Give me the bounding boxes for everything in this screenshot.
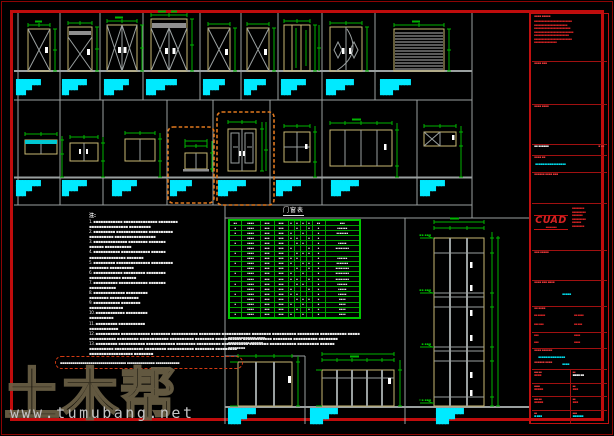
schedule-footnote: ▪▪▪▪▪▪▪▪ [228, 346, 265, 351]
red-note-lines: ▪▪▪▪▪▪▪▪▪▪▪▪▪▪▪▪▪▪▪▪▪▪▪▪▪▪▪▪▪▪▪▪▪▪▪▪▪▪▪▪… [534, 20, 573, 45]
staff-cell: ▪▪ ▪▪▪▪▪ [534, 314, 545, 318]
drawing-label-line: ██ [203, 91, 224, 96]
drawing-label: ████████ █████ ██ [62, 81, 86, 95]
drawing-label: ██████████ ██████ ███ [146, 81, 176, 95]
info-cell: ▪▪ ▪▪▪ [570, 383, 608, 397]
labels-row1: ████████ █████ ███ ████████ █████ ██ ███… [0, 81, 614, 99]
design-institute-logo: CUAD ▪▪▪▪▪▪▪▪ [534, 215, 568, 230]
drawing-label: ████████ █████ ██ [62, 182, 86, 196]
drawing-label: ████████ ██████ ███ [104, 81, 128, 95]
drawing-label-line: ███ [281, 91, 305, 96]
drawing-label: █████████ ██████ ███ [326, 81, 353, 95]
titleblock-seal-section: ▪▪▪▪ ▪▪▪▪ [532, 104, 607, 145]
drawing-label-line: ████ [436, 420, 463, 425]
info-cell: ▪▪▪▪ ▪▪▪▪▪ [532, 383, 570, 397]
drawing-label: ████████ █████ ███ [420, 182, 444, 196]
schedule-cell: ▪▪▪ [274, 312, 288, 318]
door-elevation-5 [208, 22, 237, 71]
info-value: ▪▪▪▪ ▪▪ [573, 374, 606, 378]
drawing-label: ████████ █████ ███ [16, 81, 40, 95]
drawing-label-line: ███ [420, 192, 444, 197]
drawing-label-line: ████ [380, 91, 410, 96]
sheet-name-text: ▪▪▪▪ [562, 362, 569, 366]
role-cell: ▪▪▪ [534, 334, 539, 338]
window-elevation-4-highlighted [183, 139, 214, 172]
drawing-label: ████████ █████ ███ [281, 81, 305, 95]
window-elevation-2 [70, 135, 105, 177]
cad-sheet: ▪▪.▪▪▪ ▪▪.▪▪▪ ▪.▪▪▪ ±▪.▪▪▪ 注: 1. ▪▪▪▪▪▪▪… [0, 0, 614, 436]
window-elevation-3 [125, 131, 162, 177]
watermark-url: www.tumubang.net [10, 404, 195, 422]
drawing-label-line: ██ [276, 192, 300, 197]
staff-cell: ▪▪▪ ▪▪▪ [534, 323, 544, 327]
drawing-label: ████████ ██████ ███ [112, 182, 136, 196]
title-block: ▪▪▪▪ ▪▪▪▪▪ ▪▪▪▪▪▪▪▪▪▪▪▪▪▪▪▪▪▪▪▪▪▪▪▪▪▪▪▪▪… [529, 13, 609, 424]
storefront-elevation-middle [316, 352, 402, 406]
drawing-label-line: ████ [228, 420, 255, 425]
titleblock-cert-section: ▪▪▪▪ ▪▪ ▪▪▪▪▪▪▪▪▪▪▪▪▪▪▪▪▪ [532, 155, 607, 173]
schedule-cell: ▪ [312, 312, 325, 318]
door-elevation-8 [330, 21, 369, 71]
drawing-label-line: ███ [16, 192, 40, 197]
info-value: ▪▪▪▪▪▪ [573, 415, 606, 419]
schedule-title: 门窗表 [283, 205, 304, 216]
role-cell: ▪▪▪ [534, 341, 539, 345]
drawing-label-line: ███ [16, 91, 40, 96]
titleblock-project-name-section: ▪▪▪▪ ▪▪▪▪▪▪ ▪▪▪▪▪▪▪▪▪▪▪▪▪▪▪ ▪▪▪▪▪▪ ▪▪▪▪ … [532, 348, 607, 370]
drawing-label-line: ██ [170, 192, 191, 197]
door-elevation-2 [68, 21, 99, 71]
project-name-text: ▪▪▪▪▪▪▪▪▪▪▪▪▪▪▪ [538, 355, 565, 359]
section-caption: ▪▪▪▪ ▪▪▪ ▪▪▪▪ [534, 281, 554, 284]
schedule-cell: ▪ [229, 312, 241, 318]
drawing-label-line: ██ [62, 91, 86, 96]
drawing-label-line: ███ [326, 91, 353, 96]
schedule-cell: ▪▪▪▪ [325, 312, 360, 318]
titleblock-subproject-section: ▪▪▪▪ ▪▪▪ ▪▪▪▪ ▪▪▪▪▪ [532, 280, 607, 307]
schedule-footnotes: ▪▪▪▪▪▪▪▪▪▪▪▪▪ ▪▪▪▪▪▪▪▪▪▪▪▪▪▪ ▪▪▪▪▪▪▪▪▪▪▪… [228, 336, 265, 351]
section-caption: ▪▪▪▪ ▪▪▪ [534, 62, 547, 65]
window-elevation-1 [25, 132, 64, 177]
level-marker-text: ±▪.▪▪▪ [419, 398, 431, 402]
drawing-label-line: ███ [104, 91, 128, 96]
info-cell: ▪▪ ▪▪▪▪ ▪▪ [570, 369, 608, 383]
labels-row2: ████████ █████ ███ ████████ █████ ██ ███… [0, 182, 614, 200]
info-cell: ▪▪▪ ▪▪▪▪▪▪ [570, 410, 608, 424]
door-elevation-1 [28, 21, 57, 72]
info-value: ▪ ▪▪▪ [534, 415, 568, 419]
door-window-schedule: ▪▪▪▪▪▪▪▪▪▪▪▪▪▪▪▪▪▪▪▪▪▪▪▪▪▪▪▪▪▪▪▪▪▪▪▪▪▪▪▪… [228, 219, 361, 319]
logo-text: CUAD [534, 216, 568, 226]
info-cell: ▪▪ ▪▪▪ [570, 396, 608, 410]
door-elevation-3 [107, 17, 144, 72]
info-value: ▪▪▪ [573, 401, 606, 405]
titleblock-client-section: ▪▪▪ ▪▪▪▪▪ [532, 250, 607, 281]
drawing-label: █████████ ██████ ████ [310, 410, 337, 424]
role-cell: ▪▪▪▪ [574, 341, 580, 345]
drawing-label: ███████ █████ ██ [170, 182, 191, 196]
drawing-label-line: ███ [112, 192, 136, 197]
cert-number-text: ▪▪▪▪▪▪▪▪▪▪▪▪▪▪▪▪▪ [535, 162, 566, 166]
drawing-label: ███████ ████ ██ [244, 81, 265, 95]
drawing-label: ████████ █████ ███ [16, 182, 40, 196]
drawing-label: █████████ ██████ ████ [436, 410, 463, 424]
window-elevation-5 [284, 124, 317, 177]
notes-heading: 注: [89, 212, 96, 219]
schedule-cell: ▪▪▪▪ [241, 312, 260, 318]
titleblock-info-grid: ▪▪▪ ▪▪ ▪▪▪▪ ▪▪ ▪▪▪▪ ▪▪ ▪▪▪▪ ▪▪▪▪▪ ▪▪ ▪▪▪… [532, 369, 607, 423]
logo-side-line: ▪▪▪▪▪▪▪▪ [572, 225, 586, 229]
role-cell: ▪▪▪▪ [574, 334, 580, 338]
window-elevation-6-wide [330, 119, 399, 178]
sub-caption: ▪▪▪▪▪▪ ▪▪▪▪ [534, 361, 552, 364]
logo-side-lines: ▪▪▪▪▪▪▪▪▪▪▪▪▪▪▪▪▪▪▪▪▪▪▪▪▪▪▪▪▪▪▪▪▪▪▪▪▪▪▪▪… [572, 207, 586, 228]
drawing-label: █████████ ██████ ████ [228, 410, 255, 424]
titleblock-role-row: ▪▪▪ ▪▪▪▪ ▪▪▪ ▪▪▪▪ [532, 332, 607, 349]
drawing-label: ██████████ ██████ ████ [380, 81, 410, 95]
section-caption: ▪▪▪▪ ▪▪ [534, 156, 545, 159]
info-cell: ▪▪▪ ▪▪ ▪▪▪▪ [532, 369, 570, 383]
staff-cell: ▪▪ ▪▪▪ [574, 323, 582, 327]
subproject-text: ▪▪▪▪▪ [562, 292, 571, 296]
drawing-label-line: ███ [146, 91, 176, 96]
drawing-label-line: ██ [244, 91, 265, 96]
info-cell: ▪▪▪ ▪▪ ▪▪▪▪▪ [532, 396, 570, 410]
titleblock-notes-section: ▪▪▪▪ ▪▪▪▪▪ ▪▪▪▪▪▪▪▪▪▪▪▪▪▪▪▪▪▪▪▪▪▪▪▪▪▪▪▪▪… [532, 14, 607, 62]
section-caption: ▪▪▪▪ ▪▪▪▪▪ [534, 15, 550, 18]
info-cell: ▪▪ ▪ ▪▪▪ [532, 410, 570, 424]
section-caption: ▪▪▪▪▪▪ ▪▪▪▪ ▪▪▪ [534, 173, 558, 176]
titleblock-logo-section: CUAD ▪▪▪▪▪▪▪▪ ▪▪▪▪▪▪▪▪▪▪▪▪▪▪▪▪▪▪▪▪▪▪▪▪▪▪… [532, 203, 607, 251]
info-value: ▪▪▪▪▪ [534, 401, 568, 405]
section-caption: ▪▪▪▪ ▪▪▪▪ [534, 105, 549, 108]
schedule-cell: ▪▪▪ [260, 312, 274, 318]
roller-shutter-door-elevation [394, 21, 451, 72]
info-value: ▪▪▪▪ [534, 374, 568, 378]
drawing-label-line: ███ [218, 192, 245, 197]
section-caption: ▪▪▪ ▪▪▪▪▪ [534, 251, 549, 254]
drawing-label: █████████ ██████ ███ [218, 182, 245, 196]
door-elevation-7 [284, 19, 321, 71]
section-caption: ▪▪▪▪ ▪▪▪▪▪▪ [534, 349, 552, 352]
door-elevation-6 [247, 22, 276, 71]
logo-subtext: ▪▪▪▪▪▪▪▪ [534, 226, 568, 229]
window-elevation-7 [424, 124, 463, 177]
red-note-line: ▪▪▪▪▪▪▪▪▪▪▪▪▪▪▪ [534, 41, 573, 45]
titleblock-approval-section: ▪▪▪▪▪▪ ▪▪▪▪ ▪▪▪ [532, 172, 607, 204]
drawing-label-line: ████ [310, 420, 337, 425]
strip-right-text: ▪ ▪▪ [598, 145, 604, 148]
strip-left-text: ▪▪ ▪▪▪▪▪▪ [534, 145, 549, 148]
door-elevation-4 [151, 11, 194, 72]
drawing-label-line: ██ [62, 192, 86, 197]
staff-cell: ▪▪ ▪▪▪▪ [574, 314, 584, 318]
section-caption: ▪▪ ▪▪▪▪ [534, 307, 545, 310]
drawing-label: ███████ █████ ██ [203, 81, 224, 95]
drawing-label-line: ███ [331, 192, 358, 197]
info-value: ▪▪▪ [573, 388, 606, 392]
drawing-label: ████████ █████ ██ [276, 182, 300, 196]
drawing-label: █████████ ██████ ███ [331, 182, 358, 196]
info-value: ▪▪▪▪▪ [534, 388, 568, 392]
titleblock-staff-section: ▪▪ ▪▪▪▪ ▪▪ ▪▪▪▪▪ ▪▪ ▪▪▪▪ ▪▪▪ ▪▪▪ ▪▪ ▪▪▪ [532, 306, 607, 333]
door-elevation-highlighted [228, 120, 268, 171]
titleblock-signoff-section: ▪▪▪▪ ▪▪▪ [532, 61, 607, 105]
schedule-row: ▪▪▪▪▪▪▪▪▪▪▪▪▪▪▪▪▪▪ [229, 312, 360, 318]
